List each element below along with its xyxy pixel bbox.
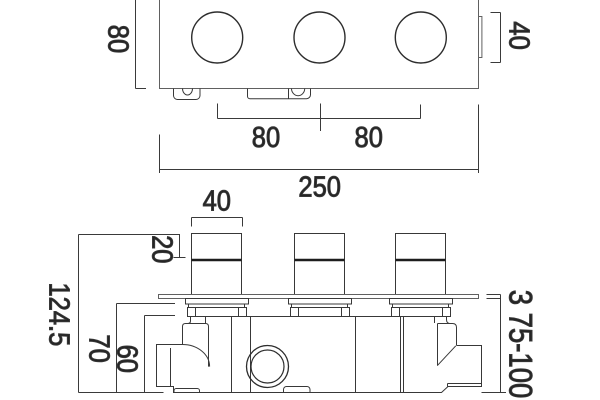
svg-text:250: 250: [298, 170, 341, 203]
svg-text:60: 60: [111, 345, 144, 373]
svg-text:124.5: 124.5: [43, 282, 76, 346]
svg-text:80: 80: [252, 120, 280, 153]
svg-text:70: 70: [83, 334, 116, 362]
svg-text:40: 40: [503, 21, 536, 49]
svg-text:3 75-100: 3 75-100: [502, 290, 537, 399]
svg-text:80: 80: [102, 25, 135, 53]
svg-text:80: 80: [355, 120, 383, 153]
svg-text:40: 40: [203, 184, 231, 217]
svg-text:20: 20: [146, 235, 179, 263]
